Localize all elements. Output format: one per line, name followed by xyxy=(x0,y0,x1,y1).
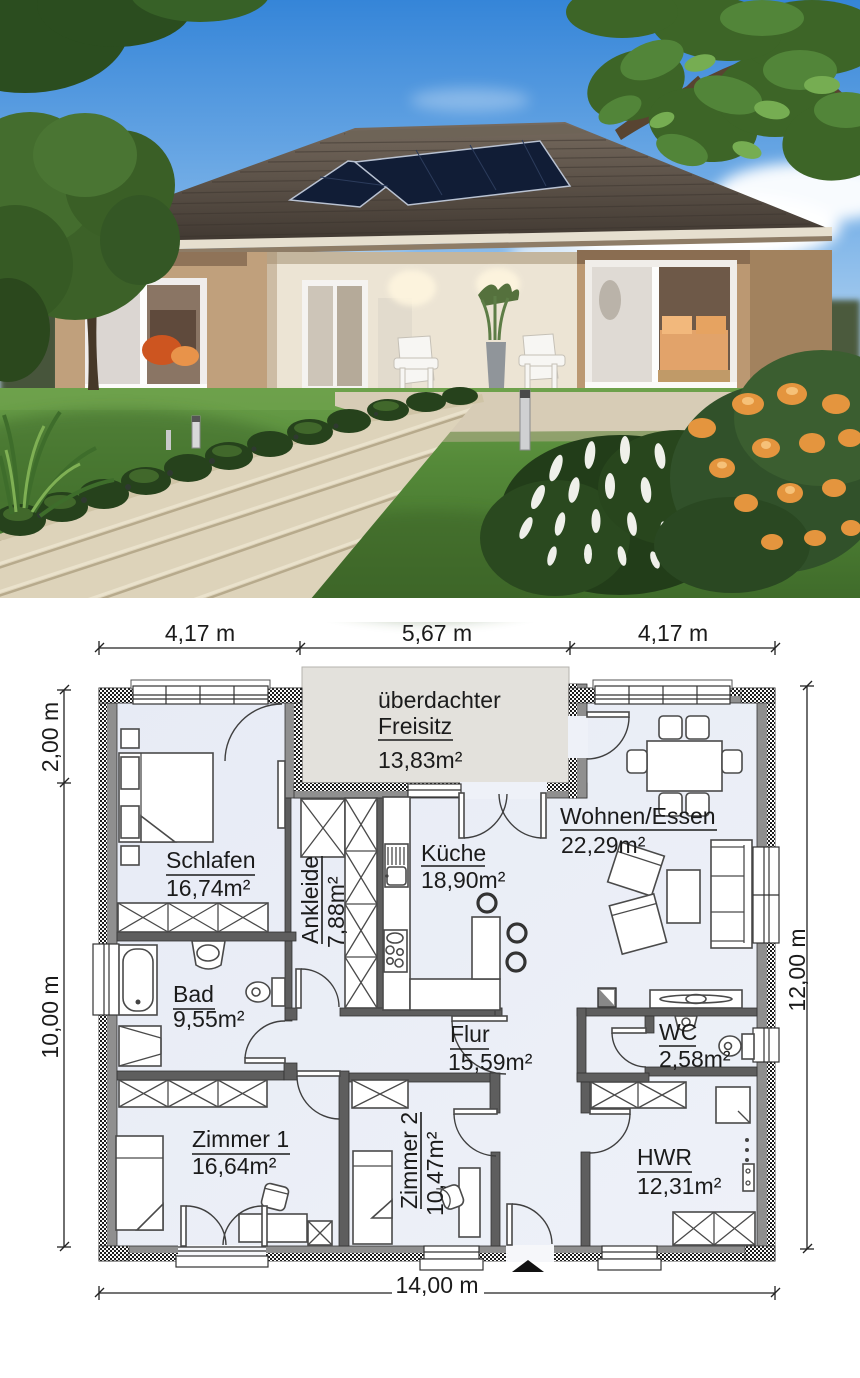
svg-text:2,00 m: 2,00 m xyxy=(37,702,63,772)
svg-text:4,17 m: 4,17 m xyxy=(638,620,708,646)
svg-text:HWR: HWR xyxy=(637,1144,692,1170)
svg-text:10,00 m: 10,00 m xyxy=(37,975,63,1058)
svg-text:7,88m²: 7,88m² xyxy=(323,876,349,948)
svg-text:14,00 m: 14,00 m xyxy=(395,1272,478,1298)
svg-text:Ankleide: Ankleide xyxy=(297,856,323,944)
svg-text:4,17 m: 4,17 m xyxy=(165,620,235,646)
svg-text:9,55m²: 9,55m² xyxy=(173,1006,245,1032)
svg-text:Schlafen: Schlafen xyxy=(166,847,256,873)
svg-text:18,90m²: 18,90m² xyxy=(421,867,506,893)
svg-text:16,74m²: 16,74m² xyxy=(166,875,251,901)
svg-text:Zimmer 1: Zimmer 1 xyxy=(192,1126,289,1152)
svg-text:16,64m²: 16,64m² xyxy=(192,1153,277,1179)
svg-text:überdachter: überdachter xyxy=(378,687,501,713)
svg-text:22,29m²: 22,29m² xyxy=(561,832,646,858)
svg-text:10,47m²: 10,47m² xyxy=(422,1131,448,1216)
svg-text:2,58m²: 2,58m² xyxy=(659,1046,731,1072)
svg-text:Zimmer 2: Zimmer 2 xyxy=(396,1112,422,1209)
svg-text:Freisitz: Freisitz xyxy=(378,713,452,739)
svg-text:WC: WC xyxy=(659,1019,697,1045)
svg-text:Bad: Bad xyxy=(173,981,214,1007)
svg-text:15,59m²: 15,59m² xyxy=(448,1049,533,1075)
svg-text:Flur: Flur xyxy=(450,1021,490,1047)
svg-text:12,00 m: 12,00 m xyxy=(784,928,810,1011)
svg-text:5,67 m: 5,67 m xyxy=(402,620,472,646)
svg-text:13,83m²: 13,83m² xyxy=(378,747,463,773)
svg-text:12,31m²: 12,31m² xyxy=(637,1173,722,1199)
svg-text:Wohnen/Essen: Wohnen/Essen xyxy=(560,803,716,829)
svg-text:Küche: Küche xyxy=(421,840,486,866)
